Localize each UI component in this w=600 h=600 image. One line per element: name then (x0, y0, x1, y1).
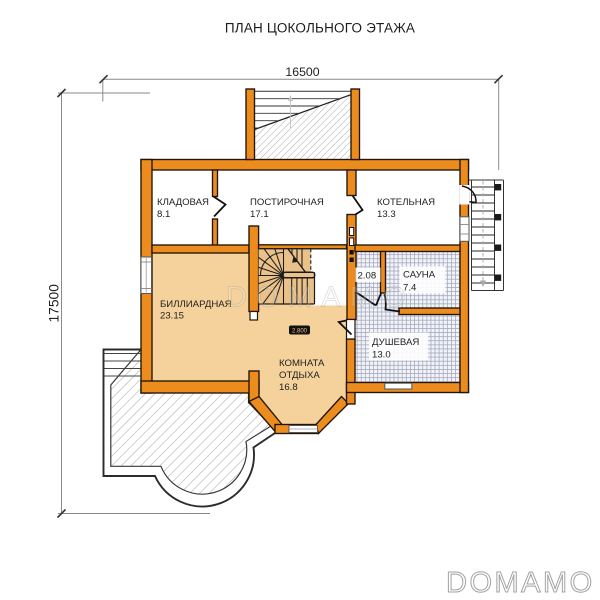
svg-text:2.08: 2.08 (358, 271, 377, 282)
svg-text:23.15: 23.15 (160, 311, 184, 322)
svg-text:DOMAMO: DOMAMO (226, 282, 415, 314)
svg-text:САУНА: САУНА (403, 270, 436, 281)
svg-text:БИЛЛИАРДНАЯ: БИЛЛИАРДНАЯ (160, 299, 232, 310)
svg-text:КЛАДОВАЯ: КЛАДОВАЯ (157, 197, 209, 208)
svg-text:КОТЕЛЬНАЯ: КОТЕЛЬНАЯ (377, 197, 435, 208)
svg-text:DOMAMO: DOMAMO (446, 567, 595, 599)
svg-text:ДУШЕВАЯ: ДУШЕВАЯ (372, 337, 419, 348)
svg-text:17500: 17500 (47, 284, 62, 323)
svg-text:ОТДЫХА: ОТДЫХА (279, 370, 320, 381)
svg-text:16500: 16500 (285, 65, 319, 79)
svg-text:17.1: 17.1 (250, 209, 269, 220)
svg-text:13.0: 13.0 (372, 350, 391, 361)
svg-text:2.800: 2.800 (292, 328, 308, 334)
svg-text:16.8: 16.8 (279, 382, 298, 393)
svg-text:ПЛАН ЦОКОЛЬНОГО ЭТАЖА: ПЛАН ЦОКОЛЬНОГО ЭТАЖА (225, 20, 415, 35)
svg-text:8.1: 8.1 (157, 209, 170, 220)
svg-text:ПОСТИРОЧНАЯ: ПОСТИРОЧНАЯ (250, 197, 324, 208)
svg-text:КОМНАТА: КОМНАТА (279, 358, 325, 369)
svg-text:13.3: 13.3 (377, 209, 396, 220)
